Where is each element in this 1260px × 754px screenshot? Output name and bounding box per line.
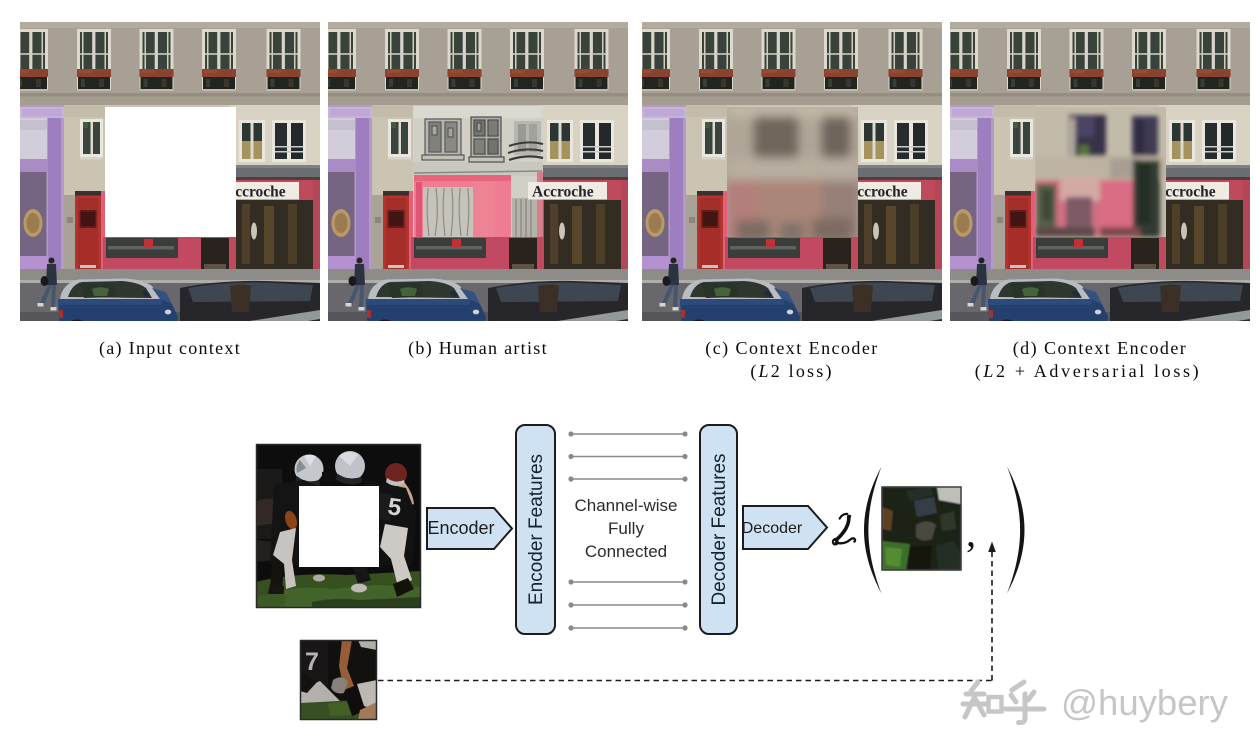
svg-text:@huybery: @huybery xyxy=(1061,682,1229,723)
svg-text:(a) Input context: (a) Input context xyxy=(99,338,241,359)
svg-text:Decoder Features: Decoder Features xyxy=(709,453,730,605)
svg-text:,: , xyxy=(966,510,976,555)
svg-text:(L2 + Adversarial loss): (L2 + Adversarial loss) xyxy=(975,361,1202,382)
svg-text:(c) Context Encoder: (c) Context Encoder xyxy=(705,338,879,359)
svg-text:(b) Human artist: (b) Human artist xyxy=(408,338,548,359)
svg-text:Channel-wise: Channel-wise xyxy=(575,496,678,515)
svg-text:(d) Context Encoder: (d) Context Encoder xyxy=(1013,338,1188,359)
svg-text:Encoder Features: Encoder Features xyxy=(526,454,547,605)
svg-text:Accroche: Accroche xyxy=(532,184,594,201)
svg-text:Encoder: Encoder xyxy=(427,518,494,538)
svg-text:Connected: Connected xyxy=(585,542,667,561)
svg-text:(L2 loss): (L2 loss) xyxy=(750,361,833,382)
svg-text:Fully: Fully xyxy=(608,519,644,538)
svg-text:Decoder: Decoder xyxy=(742,520,803,537)
